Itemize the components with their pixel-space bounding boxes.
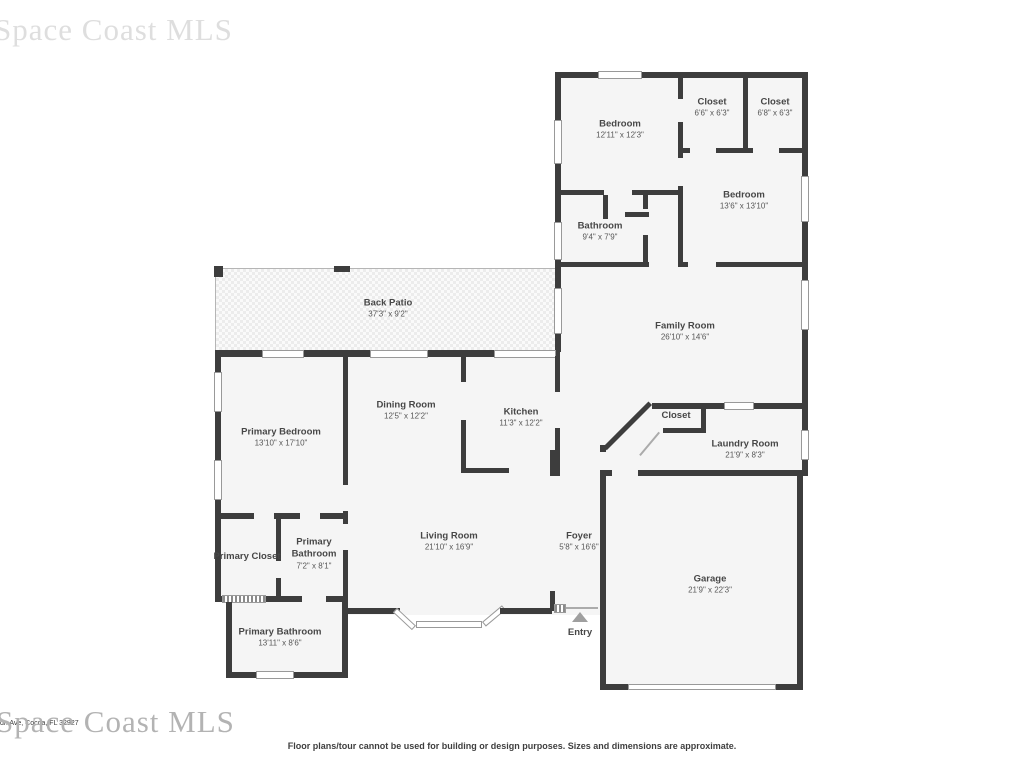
bay-window <box>416 621 482 628</box>
entry-label: Entry <box>568 627 592 639</box>
room-dims: 13'11" x 8'6" <box>239 639 322 649</box>
room-label-back-patio: Back Patio 37'3" x 9'2" <box>364 298 413 321</box>
room-name: Bedroom <box>599 119 641 130</box>
room-name: Foyer <box>566 531 592 542</box>
wall-segment <box>802 72 808 476</box>
floor-plan: Space Coast MLS <box>0 0 1024 768</box>
room-name: Closet <box>697 97 726 108</box>
room-label-bedroom: Bedroom 13'6" x 13'10" <box>720 190 768 213</box>
room-label-closet: Closet 6'6" x 6'3" <box>695 97 730 120</box>
wall-segment <box>643 195 648 209</box>
window <box>801 280 809 330</box>
wall-segment <box>643 235 648 267</box>
room-label-dining-room: Dining Room 12'5" x 12'2" <box>376 400 435 423</box>
room-dims: 6'8" x 6'3" <box>758 109 793 119</box>
window <box>724 402 754 410</box>
disclaimer-text: Floor plans/tour cannot be used for buil… <box>0 741 1024 751</box>
room-name: Family Room <box>655 321 715 332</box>
wall-segment <box>215 513 348 519</box>
room-dims: 26'10" x 14'6" <box>655 333 715 343</box>
room-name: Dining Room <box>376 400 435 411</box>
room-dims: 7'2" x 8'1" <box>283 561 345 571</box>
room-label-laundry-room: Laundry Room 21'9" x 8'3" <box>711 439 778 462</box>
window <box>214 460 222 500</box>
room-name: Primary Bathroom <box>239 627 322 638</box>
room-label-primary-closet: Primary Closet <box>213 551 280 563</box>
room-label-bathroom: Bathroom 9'4" x 7'9" <box>578 221 623 244</box>
room-name: Primary Closet <box>213 551 280 562</box>
patio-door <box>370 350 428 358</box>
room-dims: 5'8" x 16'6" <box>559 543 598 553</box>
room-name: Back Patio <box>364 298 413 309</box>
room-name: Living Room <box>420 531 478 542</box>
room-label-primary-bedroom: Primary Bedroom 13'10" x 17'10" <box>241 427 321 450</box>
wall-segment <box>600 445 606 690</box>
room-name: Bathroom <box>578 221 623 232</box>
door-opening <box>678 158 683 186</box>
window <box>256 671 294 679</box>
door-opening <box>688 262 716 267</box>
room-name: Closet <box>760 97 789 108</box>
door-opening <box>302 596 326 602</box>
room-label-bedroom: Bedroom 12'11" x 12'3" <box>596 119 644 142</box>
room-label-closet: Closet 6'8" x 6'3" <box>758 97 793 120</box>
wall-segment <box>550 450 555 476</box>
window <box>494 350 556 358</box>
window <box>801 430 809 460</box>
wall-segment <box>500 608 552 614</box>
room-name: Primary Bathroom <box>292 536 337 559</box>
watermark-bottom: Space Coast MLS <box>0 704 235 740</box>
room-dims: 21'10" x 16'9" <box>420 543 478 553</box>
wall-segment <box>743 72 748 150</box>
wall-segment <box>797 470 803 690</box>
door-opening <box>612 470 638 476</box>
footprint-middle <box>348 356 605 615</box>
door-opening <box>254 513 274 519</box>
window <box>801 176 809 222</box>
room-dims: 9'4" x 7'9" <box>578 233 623 243</box>
wall-segment <box>603 195 608 219</box>
room-name: Laundry Room <box>711 439 778 450</box>
door-opening <box>604 190 632 195</box>
room-dims: 21'9" x 8'3" <box>711 451 778 461</box>
patio-post <box>214 266 223 277</box>
room-dims: 37'3" x 9'2" <box>364 310 413 320</box>
room-dims: 12'5" x 12'2" <box>376 412 435 422</box>
room-dims: 6'6" x 6'3" <box>695 109 730 119</box>
door-opening <box>300 513 320 519</box>
wall-segment <box>625 212 649 217</box>
room-name: Primary Bedroom <box>241 427 321 438</box>
room-label-closet: Closet <box>661 410 690 422</box>
room-label-primary-bathroom: Primary Bathroom 13'11" x 8'6" <box>239 627 322 650</box>
room-dims: 12'11" x 12'3" <box>596 131 644 141</box>
room-label-foyer: Foyer 5'8" x 16'6" <box>559 531 598 554</box>
room-label-primary-bathroom: Primary Bathroom 7'2" x 8'1" <box>283 536 345 571</box>
door-opening <box>343 485 348 511</box>
room-label-kitchen: Kitchen 11'3" x 12'2" <box>499 407 542 430</box>
wall-segment <box>461 420 466 472</box>
window <box>554 120 562 164</box>
room-dims: 21'9" x 22'3" <box>688 586 732 596</box>
entry-arrow-icon <box>572 612 588 622</box>
room-label-family-room: Family Room 26'10" x 14'6" <box>655 321 715 344</box>
wall-segment <box>678 72 683 99</box>
door-opening <box>753 148 779 153</box>
wall-segment <box>555 356 560 392</box>
wall-segment <box>555 428 560 476</box>
window <box>598 71 642 79</box>
wall-segment <box>461 356 466 382</box>
wall-segment <box>226 602 232 678</box>
room-dims: 13'6" x 13'10" <box>720 202 768 212</box>
entry-text: Entry <box>568 627 592 638</box>
window <box>262 350 304 358</box>
room-name: Closet <box>661 410 690 421</box>
patio-post <box>334 266 350 272</box>
room-name: Garage <box>694 574 727 585</box>
room-dims: 13'10" x 17'10" <box>241 439 321 449</box>
door-opening <box>690 148 716 153</box>
room-label-garage: Garage 21'9" x 22'3" <box>688 574 732 597</box>
door-threshold <box>554 604 566 613</box>
window <box>554 288 562 334</box>
window <box>214 372 222 412</box>
wall-segment <box>557 262 649 267</box>
room-name: Bedroom <box>723 190 765 201</box>
wall-segment <box>663 428 706 433</box>
wall-segment <box>348 608 400 614</box>
watermark-top: Space Coast MLS <box>0 12 233 48</box>
window <box>554 222 562 260</box>
room-name: Kitchen <box>504 407 539 418</box>
garage-door <box>628 684 776 690</box>
wall-segment <box>342 602 348 678</box>
wall-segment <box>461 468 509 473</box>
room-label-living-room: Living Room 21'10" x 16'9" <box>420 531 478 554</box>
room-dims: 11'3" x 12'2" <box>499 419 542 429</box>
